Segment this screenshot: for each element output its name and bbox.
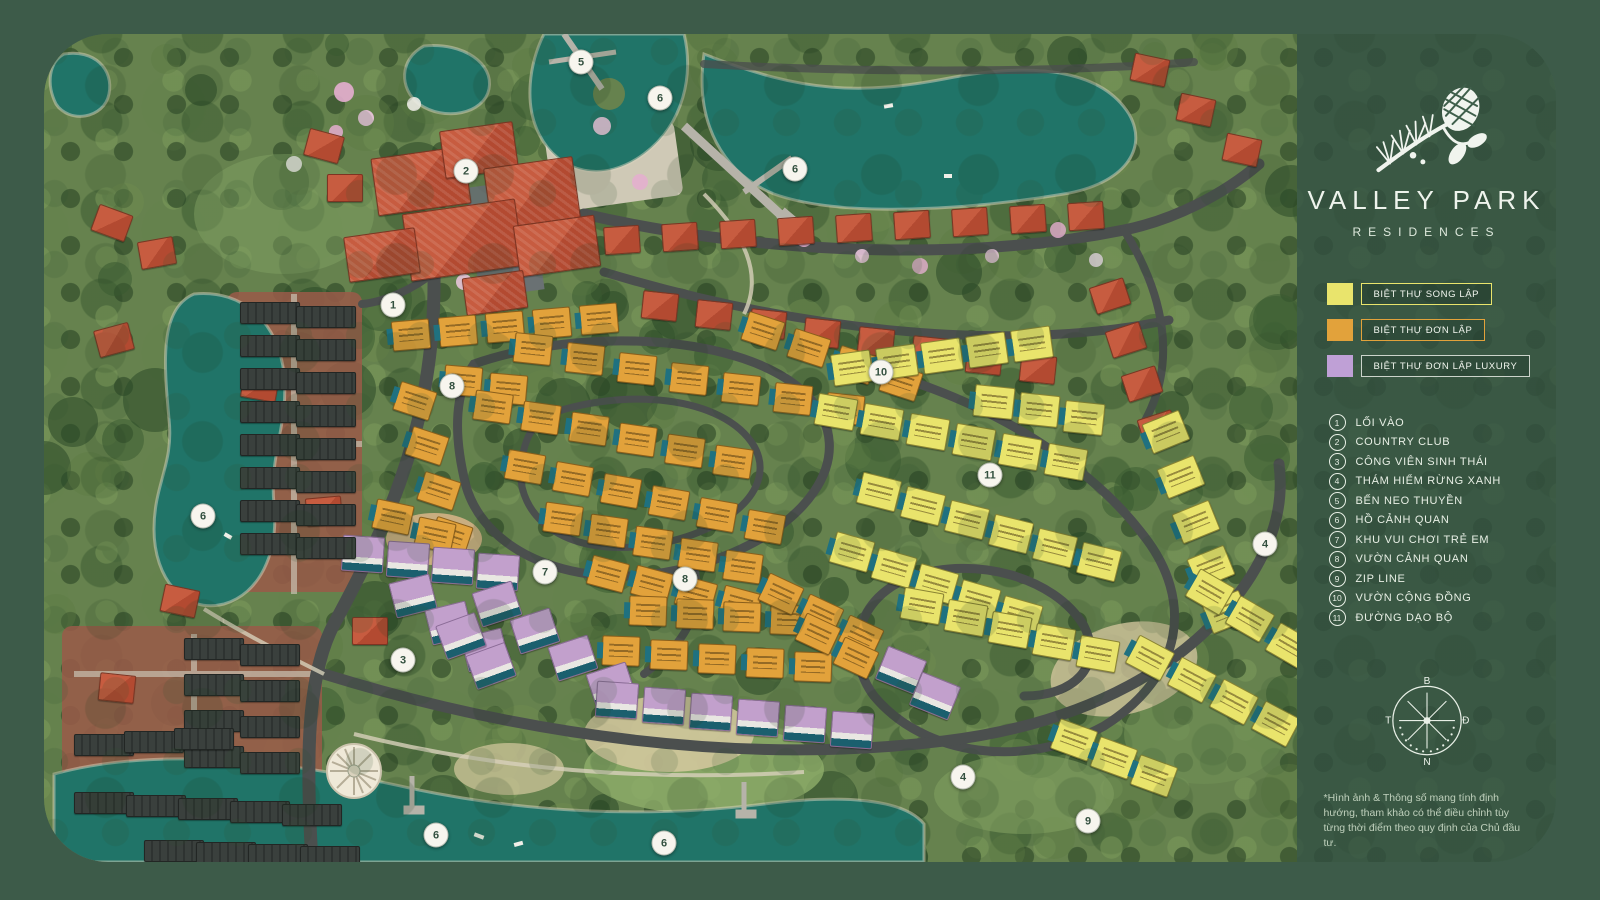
- map-marker-4: 4: [951, 765, 976, 790]
- villa-plot: [860, 403, 905, 441]
- map-marker-10: 10: [869, 360, 894, 385]
- location-number-badge: 7: [1329, 531, 1346, 548]
- compass-north-label: B: [1423, 676, 1430, 687]
- villa-plot: [240, 500, 300, 522]
- villa-plot: [920, 337, 964, 374]
- location-row-11: 11ĐƯỜNG DẠO BỘ: [1329, 608, 1525, 628]
- location-row-7: 7KHU VUI CHƠI TRẺ EM: [1329, 530, 1525, 550]
- location-row-10: 10VƯỜN CỘNG ĐỒNG: [1329, 589, 1525, 609]
- location-row-9: 9ZIP LINE: [1329, 569, 1525, 589]
- villa-plot: [1171, 500, 1220, 545]
- disclaimer-text: *Hình ảnh & Thông số mang tính định hướn…: [1324, 791, 1530, 852]
- villa-plot: [178, 798, 238, 820]
- location-number-badge: 4: [1329, 473, 1346, 490]
- villa-plot: [159, 584, 200, 619]
- villa-plot: [240, 680, 300, 702]
- compass-rose-icon: B Đ N T: [1379, 674, 1475, 767]
- compass-west-label: T: [1385, 715, 1391, 726]
- legend-row: BIỆT THỰ ĐƠN LẬP: [1327, 319, 1527, 341]
- villa-plot: [240, 302, 300, 324]
- villa-plot: [951, 207, 989, 237]
- map-marker-8: 8: [440, 374, 465, 399]
- villa-plot: [617, 352, 658, 386]
- villa-plot: [642, 687, 686, 726]
- villa-plot: [900, 587, 945, 625]
- villa-plot: [745, 647, 784, 678]
- legend-color-swatch: [1327, 283, 1353, 305]
- villa-plot: [1017, 392, 1060, 428]
- villa-plot: [1156, 455, 1205, 500]
- pine-branch-logo-icon: [1363, 78, 1491, 175]
- legend-label: BIỆT THỰ SONG LẬP: [1361, 283, 1493, 305]
- location-number-badge: 2: [1329, 434, 1346, 451]
- villa-plot: [1076, 542, 1123, 583]
- villa-plot: [431, 547, 475, 586]
- villa-plot: [472, 390, 514, 425]
- map-marker-11: 11: [978, 463, 1003, 488]
- map-marker-3: 3: [391, 648, 416, 673]
- legend-color-swatch: [1327, 355, 1353, 377]
- villa-plot: [371, 498, 414, 535]
- villa-plot: [240, 401, 300, 423]
- villa-plot: [793, 651, 832, 682]
- villa-plot: [835, 213, 873, 243]
- legend-label: BIỆT THỰ ĐƠN LẬP LUXURY: [1361, 355, 1531, 377]
- map-marker-8: 8: [673, 567, 698, 592]
- villa-plot: [462, 270, 529, 316]
- villa-plot: [972, 384, 1015, 420]
- legend-row: BIỆT THỰ SONG LẬP: [1327, 283, 1527, 305]
- villa-plot: [1175, 93, 1216, 128]
- map-marker-9: 9: [1076, 809, 1101, 834]
- villa-plot: [327, 174, 363, 202]
- location-label: ĐƯỜNG DẠO BỘ: [1356, 612, 1454, 624]
- villa-plot: [603, 225, 641, 255]
- villa-plot: [952, 423, 997, 461]
- villa-plot: [240, 644, 300, 666]
- map-marker-6: 6: [424, 823, 449, 848]
- site-plan-map: 1234456666678891011: [44, 34, 1297, 862]
- location-row-4: 4THÁM HIỂM RỪNG XANH: [1329, 472, 1525, 492]
- villa-plot: [906, 413, 951, 451]
- villa-plot: [641, 290, 680, 322]
- villa-plot: [777, 216, 815, 246]
- villa-plot: [513, 215, 601, 278]
- villa-plot: [1105, 321, 1148, 359]
- villa-plot: [722, 550, 764, 585]
- villa-plot: [240, 434, 300, 456]
- villa-plot: [90, 204, 133, 243]
- villa-plot: [542, 502, 584, 537]
- villa-plot: [744, 509, 787, 545]
- location-label: KHU VUI CHƠI TRẺ EM: [1356, 534, 1490, 546]
- villa-plot: [520, 401, 562, 436]
- villa-plot: [944, 599, 989, 637]
- villa-plot: [632, 526, 674, 561]
- villa-plot: [814, 393, 859, 431]
- location-label: VƯỜN CỘNG ĐỒNG: [1356, 592, 1472, 604]
- map-marker-6: 6: [652, 831, 677, 856]
- villa-plot: [783, 705, 827, 744]
- villa-plot: [587, 514, 629, 549]
- villa-plot: [296, 438, 356, 460]
- villa-plot: [1076, 635, 1121, 673]
- location-label: CÔNG VIÊN SINH THÁI: [1356, 456, 1488, 468]
- villa-plot: [648, 485, 691, 521]
- villa-plot: [296, 339, 356, 361]
- location-label: BẾN NEO THUYỀN: [1356, 495, 1463, 507]
- location-row-5: 5BẾN NEO THUYỀN: [1329, 491, 1525, 511]
- location-number-badge: 9: [1329, 570, 1346, 587]
- villa-plot: [1010, 325, 1054, 362]
- villa-plot: [552, 461, 595, 497]
- villa-plot: [391, 318, 431, 351]
- brand-subtitle: RESIDENCES: [1352, 225, 1500, 239]
- villa-plot: [296, 537, 356, 559]
- villa-plot: [944, 500, 991, 541]
- villa-plot: [240, 467, 300, 489]
- villa-plot: [230, 801, 290, 823]
- villa-plot: [721, 372, 762, 406]
- info-panel: VALLEY PARK RESIDENCES BIỆT THỰ SONG LẬP…: [1297, 34, 1556, 862]
- legend-row: BIỆT THỰ ĐƠN LẬP LUXURY: [1327, 355, 1527, 377]
- villa-plot: [93, 322, 135, 358]
- location-label: ZIP LINE: [1356, 573, 1406, 585]
- villa-plot: [240, 368, 300, 390]
- location-label: LỐI VÀO: [1356, 417, 1405, 429]
- compass-east-label: Đ: [1462, 715, 1469, 726]
- legend-color-swatch: [1327, 319, 1353, 341]
- location-number-badge: 3: [1329, 453, 1346, 470]
- legend-label: BIỆT THỰ ĐƠN LẬP: [1361, 319, 1486, 341]
- villa-plot: [1032, 528, 1079, 569]
- villa-plot: [893, 210, 931, 240]
- villa-plot: [196, 842, 256, 862]
- location-label: COUNTRY CLUB: [1356, 436, 1451, 448]
- villa-plot: [126, 795, 186, 817]
- villa-plot: [240, 335, 300, 357]
- villa-plot: [240, 533, 300, 555]
- villa-plot: [184, 674, 244, 696]
- villa-plot: [616, 423, 658, 458]
- villa-plot: [438, 314, 478, 347]
- villa-plot: [736, 699, 780, 738]
- villa-plot: [773, 382, 814, 416]
- villa-plot: [504, 449, 547, 485]
- location-number-badge: 10: [1329, 590, 1346, 607]
- villa-plot: [661, 222, 699, 252]
- map-marker-6: 6: [191, 504, 216, 529]
- map-marker-6: 6: [783, 157, 808, 182]
- villa-plot: [296, 504, 356, 526]
- map-marker-6: 6: [648, 86, 673, 111]
- villa-plot: [352, 617, 388, 645]
- location-label: HỒ CẢNH QUAN: [1356, 514, 1450, 526]
- villa-plot: [697, 643, 736, 674]
- villa-plot: [303, 128, 345, 164]
- villa-plot: [416, 471, 461, 511]
- map-marker-2: 2: [454, 159, 479, 184]
- villa-plot: [696, 497, 739, 533]
- masterplan-card: 1234456666678891011: [44, 34, 1556, 862]
- numbered-locations-list: 1LỐI VÀO2COUNTRY CLUB3CÔNG VIÊN SINH THÁ…: [1329, 413, 1525, 628]
- villa-plot: [1129, 53, 1170, 88]
- villa-plot: [649, 639, 688, 670]
- villa-plot: [669, 362, 710, 396]
- villa-plot: [586, 555, 630, 594]
- villa-plot: [595, 681, 639, 720]
- villa-plot: [830, 349, 874, 386]
- villa-plot: [689, 693, 733, 732]
- villa-plot: [513, 332, 554, 366]
- villa-plot: [343, 227, 421, 283]
- villa-plot: [695, 299, 734, 331]
- villa-plot: [137, 236, 177, 270]
- villa-plot: [830, 711, 874, 750]
- villa-plot: [98, 672, 137, 704]
- location-row-1: 1LỐI VÀO: [1329, 413, 1525, 433]
- villa-plot: [965, 331, 1009, 368]
- villa-plot: [404, 426, 449, 466]
- location-row-2: 2COUNTRY CLUB: [1329, 433, 1525, 453]
- villa-plot: [300, 846, 360, 862]
- location-number-badge: 11: [1329, 609, 1346, 626]
- location-number-badge: 5: [1329, 492, 1346, 509]
- villa-plots-layer: [44, 34, 1297, 862]
- villa-plot: [719, 219, 757, 249]
- villa-plot: [988, 514, 1035, 555]
- location-number-badge: 1: [1329, 414, 1346, 431]
- villa-plot: [1062, 400, 1105, 436]
- villa-plot: [712, 445, 754, 480]
- villa-plot: [675, 598, 714, 629]
- location-number-badge: 8: [1329, 551, 1346, 568]
- compass-south-label: N: [1423, 756, 1430, 766]
- villa-plot: [664, 434, 706, 469]
- valley-park-masterplan: { "brand": { "logo": "pine-branch-and-co…: [0, 0, 1600, 900]
- villa-plot: [1251, 700, 1301, 747]
- villa-plot: [1089, 277, 1132, 315]
- villa-plot: [1221, 133, 1262, 168]
- brand-title: VALLEY PARK: [1308, 185, 1546, 216]
- map-marker-5: 5: [569, 50, 594, 75]
- location-row-8: 8VƯỜN CẢNH QUAN: [1329, 550, 1525, 570]
- villa-plot: [628, 595, 667, 626]
- villa-plot: [988, 611, 1033, 649]
- villa-plot: [296, 405, 356, 427]
- villa-plot: [600, 473, 643, 509]
- villa-plot: [296, 306, 356, 328]
- villa-plot: [296, 372, 356, 394]
- location-label: THÁM HIỂM RỪNG XANH: [1356, 475, 1502, 487]
- villa-plot: [998, 433, 1043, 471]
- location-label: VƯỜN CẢNH QUAN: [1356, 553, 1469, 565]
- villa-plot: [900, 486, 947, 527]
- villa-plot: [1130, 754, 1179, 798]
- villa-plot: [174, 728, 234, 750]
- villa-plot: [1032, 623, 1077, 661]
- villa-plot: [1044, 443, 1089, 481]
- villa-plot: [579, 302, 619, 335]
- villa-plot: [74, 792, 134, 814]
- villa-plot: [248, 844, 308, 862]
- villa-plot: [568, 412, 610, 447]
- map-marker-1: 1: [381, 293, 406, 318]
- villa-plot: [1067, 201, 1105, 231]
- villa-plot: [392, 381, 437, 421]
- villa-plot: [144, 840, 204, 862]
- map-marker-7: 7: [533, 560, 558, 585]
- location-number-badge: 6: [1329, 512, 1346, 529]
- map-marker-4: 4: [1253, 532, 1278, 557]
- location-row-3: 3CÔNG VIÊN SINH THÁI: [1329, 452, 1525, 472]
- villa-plot: [240, 752, 300, 774]
- location-row-6: 6HỒ CẢNH QUAN: [1329, 511, 1525, 531]
- villa-plot: [296, 471, 356, 493]
- villa-plot: [282, 804, 342, 826]
- villa-plot: [856, 472, 903, 513]
- villa-plot: [722, 601, 761, 632]
- villa-plot: [1009, 204, 1047, 234]
- villa-plot: [565, 342, 606, 376]
- villa-plot: [1121, 365, 1164, 403]
- villa-plot: [240, 716, 300, 738]
- villa-type-legend: BIỆT THỰ SONG LẬPBIỆT THỰ ĐƠN LẬPBIỆT TH…: [1327, 283, 1527, 391]
- villa-plot: [184, 638, 244, 660]
